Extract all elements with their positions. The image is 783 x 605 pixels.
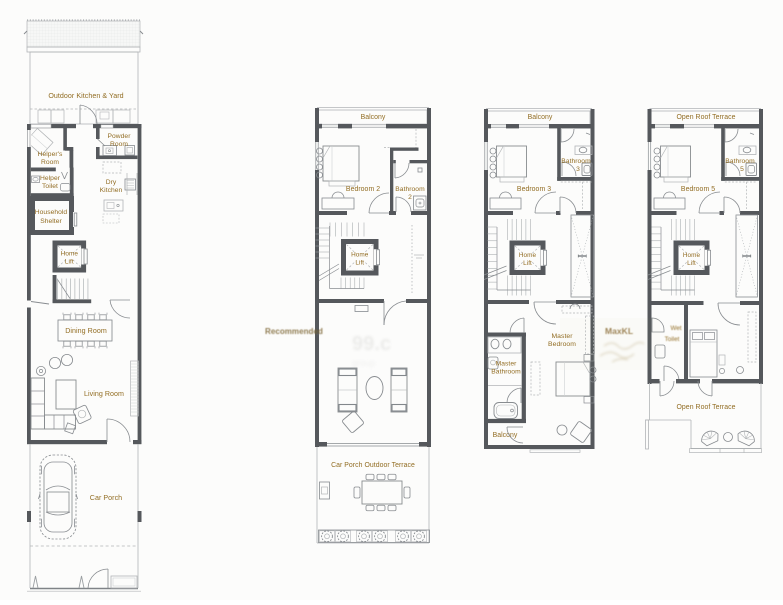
svg-text:Balcony: Balcony	[493, 432, 518, 439]
svg-text:Bathroom: Bathroom	[561, 158, 591, 165]
svg-text:...: ...	[317, 331, 321, 337]
svg-text:Home: Home	[351, 251, 369, 258]
svg-text:Bathroom: Bathroom	[395, 186, 425, 193]
svg-text:Room: Room	[110, 141, 128, 148]
svg-text:Room: Room	[41, 159, 59, 166]
svg-text:Living Room: Living Room	[84, 390, 124, 398]
svg-text:Dry: Dry	[106, 179, 117, 186]
svg-text:Car Porch Outdoor Terrace: Car Porch Outdoor Terrace	[331, 462, 415, 469]
svg-text:MaxKL: MaxKL	[605, 326, 633, 336]
svg-text:Balcony: Balcony	[528, 114, 553, 121]
svg-text:Toilet: Toilet	[665, 336, 680, 343]
svg-text:Dining Room: Dining Room	[65, 327, 107, 335]
svg-text:2: 2	[408, 194, 412, 201]
svg-text:Bedroom 2: Bedroom 2	[346, 186, 380, 193]
svg-text:Outdoor Kitchen & Yard: Outdoor Kitchen & Yard	[48, 92, 123, 100]
svg-text:Balcony: Balcony	[361, 114, 386, 121]
svg-text:Toilet: Toilet	[42, 183, 58, 190]
svg-text:99.c: 99.c	[352, 333, 391, 355]
svg-text:Shelter: Shelter	[40, 218, 62, 225]
svg-text:Home: Home	[683, 252, 701, 259]
svg-text:Car Porch: Car Porch	[90, 494, 122, 502]
svg-text:Bedroom 3: Bedroom 3	[517, 186, 551, 193]
svg-text:Lift: Lift	[65, 259, 74, 266]
svg-text:Household: Household	[35, 209, 68, 216]
svg-text:Wet: Wet	[670, 325, 681, 332]
svg-text:Master: Master	[496, 361, 517, 368]
svg-text:Powder: Powder	[108, 133, 132, 140]
svg-text:Bathroom: Bathroom	[725, 158, 755, 165]
svg-text:Lift: Lift	[355, 259, 364, 266]
svg-text:Open Roof Terrace: Open Roof Terrace	[677, 404, 736, 411]
svg-text:Bathroom: Bathroom	[491, 369, 521, 376]
svg-text:Helper: Helper	[40, 175, 61, 182]
svg-text:Home: Home	[519, 252, 537, 259]
svg-text:Home: Home	[61, 251, 79, 258]
svg-text:Recommended: Recommended	[265, 327, 323, 336]
svg-text:Lift: Lift	[687, 260, 696, 267]
svg-text:Kitchen: Kitchen	[100, 187, 123, 194]
svg-text:5: 5	[740, 166, 744, 173]
svg-text:Bedroom 5: Bedroom 5	[681, 186, 715, 193]
svg-text:Helper's: Helper's	[38, 151, 63, 158]
svg-text:Lift: Lift	[523, 260, 532, 267]
svg-text:Open Roof Terrace: Open Roof Terrace	[677, 114, 736, 121]
svg-text:3: 3	[576, 166, 580, 173]
svg-text:group: group	[352, 358, 375, 368]
